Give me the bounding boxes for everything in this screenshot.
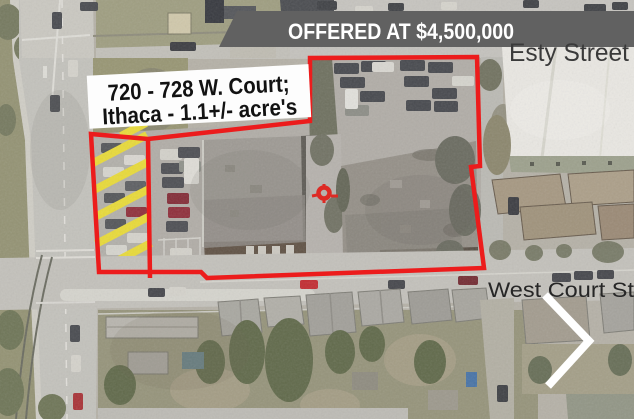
svg-text:West Court St: West Court St — [488, 279, 634, 302]
svg-text:Esty Street: Esty Street — [509, 39, 629, 67]
svg-text:OFFERED AT $4,500,000: OFFERED AT $4,500,000 — [288, 19, 514, 44]
